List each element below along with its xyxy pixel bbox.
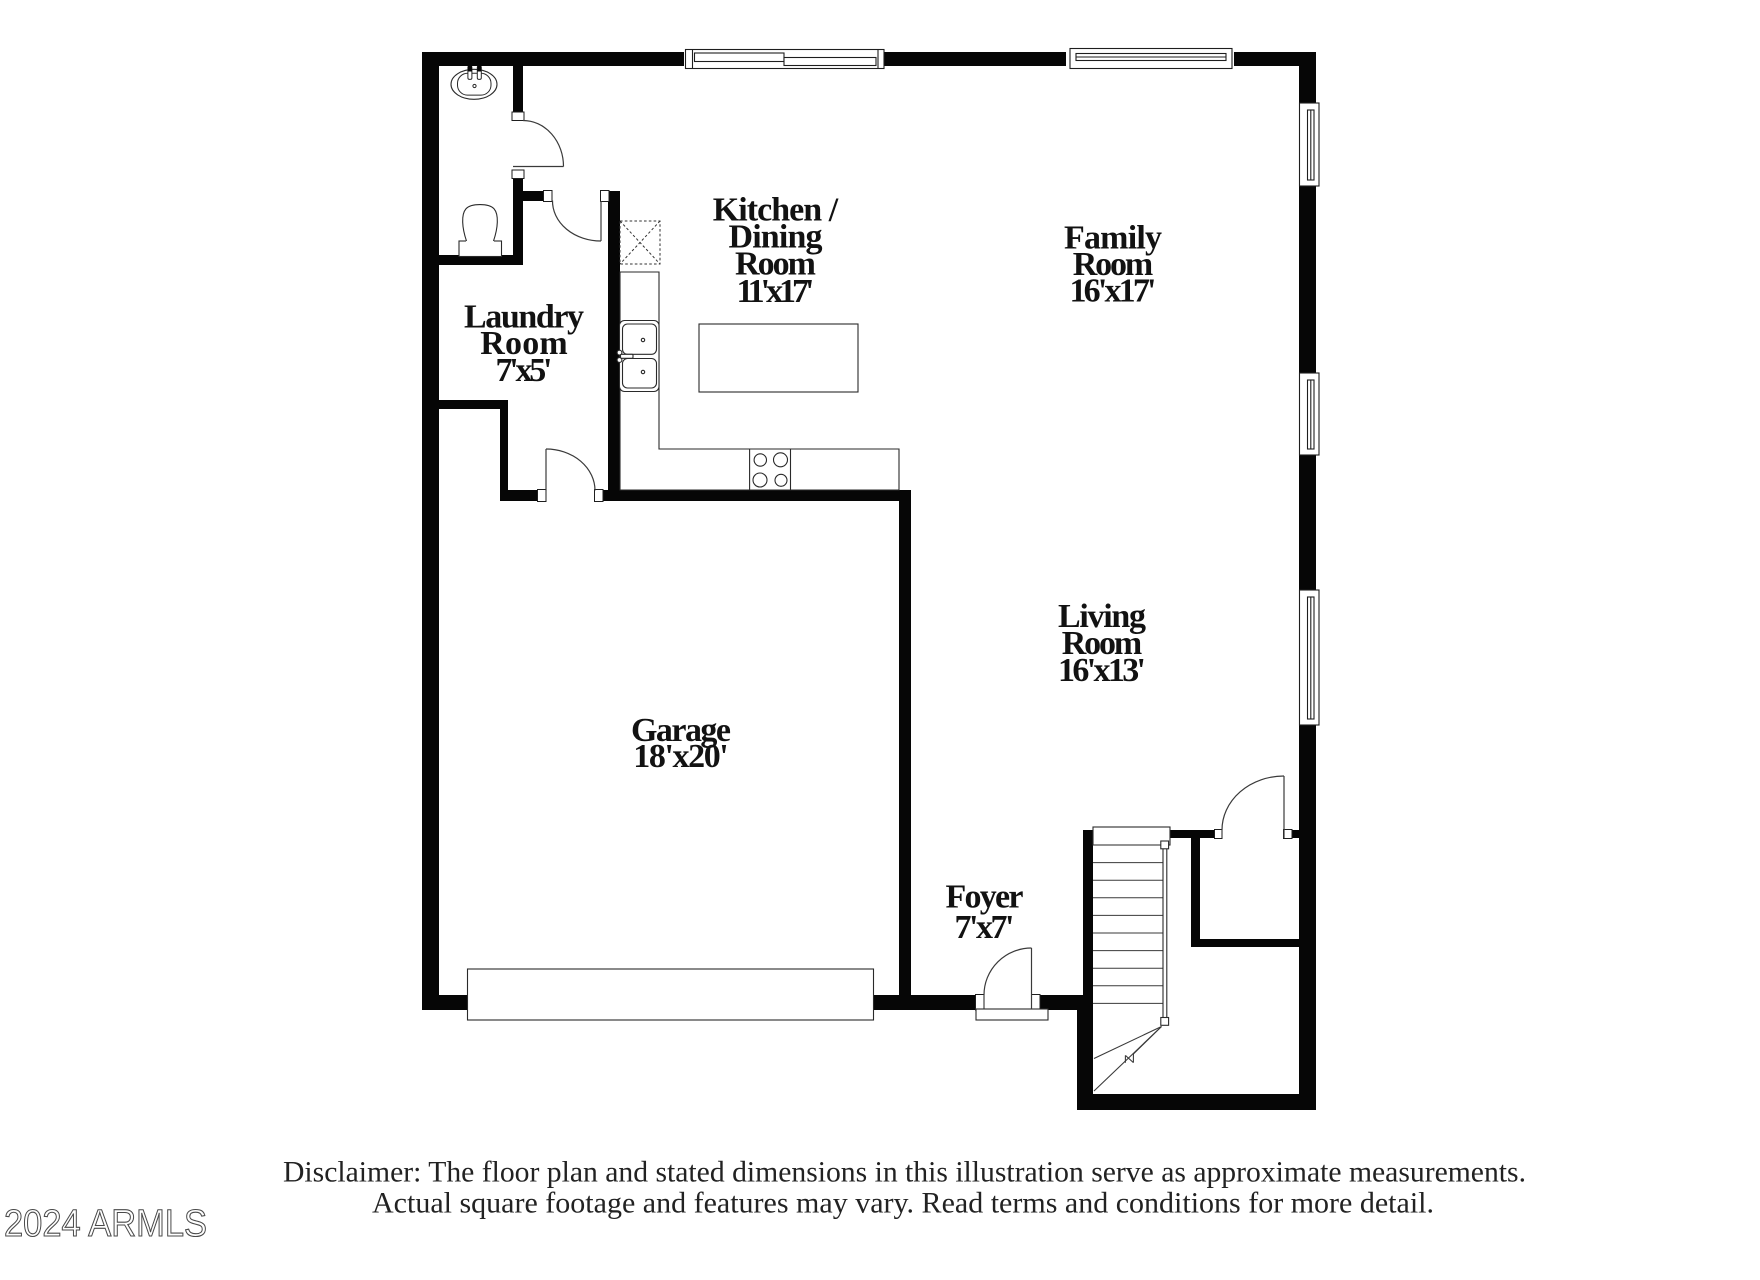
svg-text:7'x5': 7'x5': [496, 352, 553, 389]
svg-text:2024 ARMLS: 2024 ARMLS: [4, 1203, 207, 1245]
svg-text:7'x7': 7'x7': [955, 909, 1015, 946]
svg-text:11'x17': 11'x17': [737, 273, 815, 310]
svg-text:16'x17': 16'x17': [1070, 273, 1157, 310]
svg-text:16'x13': 16'x13': [1058, 652, 1146, 689]
svg-text:18'x20': 18'x20': [633, 738, 729, 775]
svg-text:Actual square footage and feat: Actual square footage and features may v…: [372, 1188, 1434, 1220]
svg-text:Disclaimer: The floor plan and: Disclaimer: The floor plan and stated di…: [283, 1157, 1526, 1189]
